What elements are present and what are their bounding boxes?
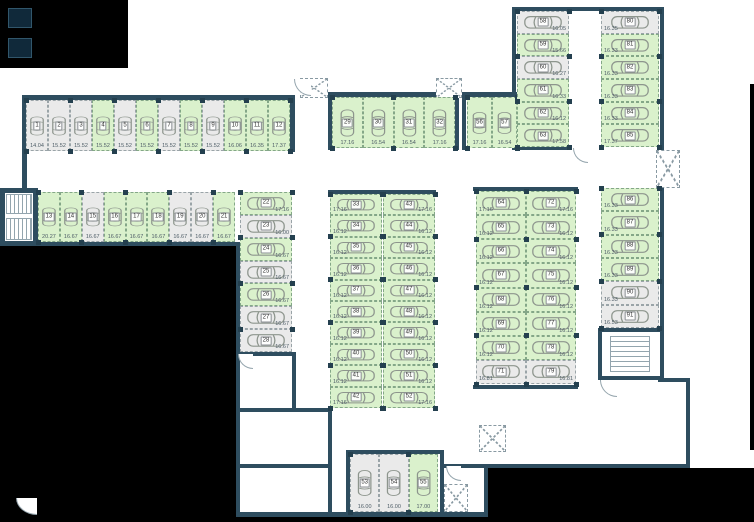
space-number: 86 [625,195,636,204]
parking-space-1[interactable]: 114.04 [26,100,48,151]
parking-space-67[interactable]: 6716.12 [476,263,526,287]
parking-space-28[interactable]: 2816.67 [240,329,292,352]
space-number: 17 [131,213,142,222]
space-number: 80 [625,18,636,27]
parking-space-41[interactable]: 4116.12 [330,365,382,386]
parking-space-44[interactable]: 4416.12 [383,215,435,236]
parking-space-13[interactable]: 1320.27 [38,192,60,242]
parking-space-29[interactable]: 2917.16 [332,97,363,148]
space-area-label: 16.53 [604,320,618,326]
parking-space-55[interactable]: 5517.00 [409,454,438,512]
space-number: 60 [538,63,549,72]
pillar [433,234,438,239]
space-area-label: 16.12 [559,304,573,310]
space-number: 52 [404,393,415,402]
parking-space-38[interactable]: 3816.12 [330,301,382,322]
pillar [474,237,479,242]
space-area-label: 16.67 [83,234,103,240]
space-area-label: 16.67 [127,234,147,240]
space-number: 77 [546,319,557,328]
parking-space-80[interactable]: 8016.35 [601,11,659,34]
space-number: 13 [44,213,55,222]
pillar [328,406,333,411]
pillar [112,98,117,103]
parking-space-87[interactable]: 8716.33 [601,211,659,234]
pillar [433,192,438,197]
space-area-label: 16.12 [552,116,566,122]
space-area-label: 16.12 [479,304,493,310]
parking-space-25[interactable]: 2516.67 [240,261,292,284]
wall [290,95,295,152]
wall [328,408,332,517]
parking-space-9[interactable]: 915.52 [202,100,224,151]
parking-space-16[interactable]: 1616.67 [104,192,126,242]
pillar [406,510,411,515]
pillar [167,190,172,195]
parking-space-75[interactable]: 7516.12 [526,263,576,287]
space-number: 42 [351,393,362,402]
space-area-label: 16.12 [559,255,573,261]
parking-space-88[interactable]: 8816.33 [601,235,659,258]
space-area-label: 16.12 [479,280,493,286]
parking-space-91[interactable]: 9116.53 [601,305,659,328]
space-area-label: 16.00 [351,504,378,510]
wall [455,92,459,150]
space-area-label: 16.67 [214,234,234,240]
pillar [453,146,458,151]
space-area-label: 16.12 [418,293,432,299]
space-area-label: 16.12 [333,250,347,256]
parking-space-21[interactable]: 2116.67 [213,192,235,242]
space-number: 76 [546,295,557,304]
pillar [290,281,295,286]
space-number: 14 [65,213,76,222]
parking-space-85[interactable]: 8517.37 [601,124,659,147]
parking-space-64[interactable]: 6417.16 [476,191,526,215]
space-number: 12 [274,121,285,130]
space-area-label: 16.12 [559,231,573,237]
pillar [657,99,662,104]
space-area-label: 16.54 [364,140,393,146]
pillar [112,149,117,154]
parking-space-18[interactable]: 1816.67 [147,192,169,242]
parking-space-31[interactable]: 3116.54 [394,97,425,148]
parking-space-82[interactable]: 8216.33 [601,56,659,79]
parking-space-10[interactable]: 1016.06 [224,100,246,151]
parking-space-65[interactable]: 6516.12 [476,215,526,239]
pillar [24,149,29,154]
space-area-label: 17.16 [333,207,347,213]
space-area-label: 16.33 [604,250,618,256]
parking-space-83[interactable]: 8316.33 [601,79,659,102]
parking-space-40[interactable]: 4016.12 [330,344,382,365]
space-area-label: 16.67 [275,321,289,327]
vent-shaft-icon [656,150,680,188]
pillar [433,363,438,368]
space-area-label: 16.35 [247,143,267,149]
parking-space-90[interactable]: 9016.33 [601,281,659,304]
parking-space-7[interactable]: 715.52 [158,100,180,151]
space-area-label: 16.12 [479,255,493,261]
parking-space-53[interactable]: 5316.00 [350,454,379,512]
space-number: 46 [404,264,415,273]
space-number: 10 [230,121,241,130]
parking-space-39[interactable]: 3916.12 [330,322,382,343]
space-number: 47 [404,286,415,295]
wall [598,328,602,380]
parking-space-78[interactable]: 7816.12 [526,336,576,360]
parking-space-74[interactable]: 7416.12 [526,239,576,263]
space-area-label: 17.37 [604,139,618,145]
space-area-label: 16.12 [418,357,432,363]
parking-space-12[interactable]: 1217.37 [268,100,290,151]
space-area-label: 15.66 [552,48,566,54]
parking-space-15[interactable]: 1516.67 [82,192,104,242]
floor-plan: 114.04215.52315.52415.52515.52615.52715.… [0,0,754,522]
parking-space-8[interactable]: 815.52 [180,100,202,151]
stairwell-icon [8,8,32,28]
parking-space-52[interactable]: 5217.16 [383,387,435,408]
parking-space-4[interactable]: 415.52 [92,100,114,151]
space-area-label: 16.06 [225,143,245,149]
space-number: 29 [342,118,353,127]
parking-space-70[interactable]: 7016.12 [476,336,526,360]
parking-space-86[interactable]: 8616.33 [601,188,659,211]
space-number: 32 [434,118,445,127]
parking-space-34[interactable]: 3416.12 [330,215,382,236]
space-area-label: 16.81 [479,376,493,382]
space-area-label: 15.52 [203,143,223,149]
pillar [290,327,295,332]
door-arc [446,466,461,481]
space-number: 70 [496,343,507,352]
space-number: 24 [261,245,272,254]
space-number: 33 [351,200,362,209]
parking-space-73[interactable]: 7316.12 [526,215,576,239]
space-number: 87 [625,218,636,227]
space-area-label: 16.12 [333,336,347,342]
vent-shaft-icon [444,484,468,512]
space-number: 41 [351,371,362,380]
space-area-label: 16.12 [333,272,347,278]
space-area-label: 17.16 [333,400,347,406]
pillar [515,99,520,104]
space-area-label: 16.00 [275,230,289,236]
space-number: 39 [351,329,362,338]
pillar [348,510,353,515]
pillar [524,189,529,194]
parking-space-56[interactable]: 5617.16 [467,97,492,148]
parking-space-79[interactable]: 7916.81 [526,360,576,384]
space-area-label: 15.52 [181,143,201,149]
space-area-label: 16.12 [333,229,347,235]
parking-space-14[interactable]: 1416.67 [60,192,82,242]
space-area-label: 16.33 [604,203,618,209]
space-number: 5 [121,121,128,130]
vent-shaft-icon [479,425,506,452]
parking-space-69[interactable]: 6916.12 [476,312,526,336]
pillar [567,145,572,150]
space-area-label: 16.12 [418,250,432,256]
parking-space-72[interactable]: 7217.16 [526,191,576,215]
space-area-label: 17.16 [418,207,432,213]
parking-space-30[interactable]: 3016.54 [363,97,394,148]
wall [686,380,690,468]
space-area-label: 16.33 [604,227,618,233]
wall [462,92,466,150]
pillar [465,95,470,100]
space-area-label: 15.52 [93,143,113,149]
space-area-label: 16.12 [333,293,347,299]
space-number: 38 [351,307,362,316]
space-number: 26 [261,290,272,299]
space-number: 58 [538,18,549,27]
space-number: 27 [261,313,272,322]
space-number: 8 [187,121,194,130]
space-area-label: 16.12 [479,231,493,237]
parking-space-22[interactable]: 2217.16 [240,192,292,215]
parking-space-2[interactable]: 215.52 [48,100,70,151]
parking-space-45[interactable]: 4516.12 [383,237,435,258]
space-number: 69 [496,319,507,328]
parking-space-51[interactable]: 5116.12 [383,365,435,386]
space-number: 66 [496,247,507,256]
space-number: 43 [404,200,415,209]
pillar [238,281,243,286]
space-area-label: 16.12 [479,352,493,358]
pillar [474,189,479,194]
pillar [156,149,161,154]
pillar [328,363,333,368]
pillar [244,149,249,154]
space-area-label: 16.67 [275,275,289,281]
parking-space-63[interactable]: 6317.58 [517,124,569,147]
pillar [211,240,216,245]
space-area-label: 15.52 [159,143,179,149]
space-area-label: 16.12 [418,229,432,235]
pillar [465,146,470,151]
space-number: 30 [373,118,384,127]
wall [292,352,296,412]
space-number: 11 [252,121,262,130]
wall [484,464,488,516]
space-number: 67 [496,271,507,280]
parking-space-46[interactable]: 4616.12 [383,258,435,279]
space-number: 37 [351,286,362,295]
pillar [156,98,161,103]
parking-space-66[interactable]: 6616.12 [476,239,526,263]
space-number: 74 [546,247,557,256]
pillar [290,190,295,195]
space-area-label: 16.33 [552,94,566,100]
parking-space-35[interactable]: 3516.12 [330,237,382,258]
pillar [524,382,529,387]
parking-space-71[interactable]: 7116.81 [476,360,526,384]
pillar [238,235,243,240]
parking-space-24[interactable]: 2416.67 [240,238,292,261]
space-number: 72 [546,199,557,208]
pillar [574,285,579,290]
parking-space-23[interactable]: 2316.00 [240,215,292,238]
space-area-label: 17.16 [425,140,454,146]
wall [660,7,664,152]
space-area-label: 16.33 [604,48,618,54]
pillar [381,277,386,282]
space-area-label: 14.04 [27,143,47,149]
pillar [244,98,249,103]
parking-space-68[interactable]: 6816.12 [476,288,526,312]
space-number: 36 [351,264,362,273]
space-number: 49 [404,329,415,338]
parking-space-62[interactable]: 6216.12 [517,102,569,125]
wall [236,408,332,412]
space-number: 34 [351,222,362,231]
parking-space-20[interactable]: 2016.67 [191,192,213,242]
space-area-label: 15.52 [115,143,135,149]
parking-space-17[interactable]: 1716.67 [126,192,148,242]
pillar [381,320,386,325]
pillar [36,190,41,195]
wall [660,186,664,382]
space-area-label: 16.35 [604,26,618,32]
space-number: 73 [546,223,557,232]
pillar [381,234,386,239]
parking-space-81[interactable]: 8116.33 [601,34,659,57]
parking-space-54[interactable]: 5416.00 [379,454,408,512]
space-area-label: 16.33 [604,116,618,122]
pillar [328,192,333,197]
pillar [433,320,438,325]
space-area-label: 16.33 [604,273,618,279]
pillar [524,237,529,242]
parking-space-3[interactable]: 315.52 [70,100,92,151]
space-area-label: 16.67 [275,253,289,259]
pillar [68,149,73,154]
parking-space-48[interactable]: 4816.12 [383,301,435,322]
space-area-label: 17.16 [559,207,573,213]
parking-space-50[interactable]: 5016.12 [383,344,435,365]
parking-space-37[interactable]: 3716.12 [330,280,382,301]
pillar [474,333,479,338]
pillar [328,234,333,239]
parking-space-42[interactable]: 4217.16 [330,387,382,408]
pillar [574,333,579,338]
space-number: 23 [261,222,272,231]
space-area-label: 17.16 [479,207,493,213]
space-area-label: 16.67 [170,234,190,240]
parking-space-11[interactable]: 1116.35 [246,100,268,151]
parking-space-60[interactable]: 6016.27 [517,56,569,79]
space-number: 2 [55,121,62,130]
pillar [657,54,662,59]
parking-space-5[interactable]: 515.52 [114,100,136,151]
space-area-label: 17.16 [275,207,289,213]
space-number: 81 [625,40,636,49]
parking-space-57[interactable]: 5716.54 [492,97,517,148]
outside-area [750,84,754,450]
space-number: 44 [404,222,415,231]
pillar [200,98,205,103]
pillar [391,95,396,100]
pillar [599,54,604,59]
outside-area [488,468,754,522]
pillar [657,279,662,284]
space-area-label: 16.12 [479,328,493,334]
parking-space-32[interactable]: 3217.16 [424,97,455,148]
space-area-label: 16.12 [333,379,347,385]
space-number: 62 [538,108,549,117]
space-number: 40 [351,350,362,359]
parking-space-84[interactable]: 8416.33 [601,102,659,125]
pillar [657,145,662,150]
space-area-label: 16.33 [604,94,618,100]
parking-space-47[interactable]: 4716.12 [383,280,435,301]
pillar [599,326,604,331]
parking-space-58[interactable]: 5816.05 [517,11,569,34]
parking-space-36[interactable]: 3616.12 [330,258,382,279]
parking-space-89[interactable]: 8916.33 [601,258,659,281]
pillar [515,54,520,59]
space-area-label: 16.12 [333,314,347,320]
wall [236,464,332,468]
space-number: 25 [261,267,272,276]
space-area-label: 17.16 [468,140,491,146]
space-number: 6 [143,121,150,130]
space-area-label: 17.37 [269,143,289,149]
space-area-label: 16.67 [275,344,289,350]
parking-space-61[interactable]: 6116.33 [517,79,569,102]
space-number: 48 [404,307,415,316]
pillar [599,9,604,14]
space-number: 20 [197,213,208,222]
space-area-label: 16.27 [552,71,566,77]
space-number: 19 [175,213,186,222]
door-arc [238,354,253,369]
space-number: 59 [538,40,549,49]
space-area-label: 17.16 [418,400,432,406]
parking-space-43[interactable]: 4317.16 [383,194,435,215]
parking-space-33[interactable]: 3317.16 [330,194,382,215]
space-number: 83 [625,86,636,95]
pillar [391,146,396,151]
pillar [36,240,41,245]
space-area-label: 20.27 [39,234,59,240]
space-number: 90 [625,288,636,297]
parking-space-59[interactable]: 5915.66 [517,34,569,57]
parking-space-76[interactable]: 7616.12 [526,288,576,312]
parking-space-26[interactable]: 2616.67 [240,283,292,306]
parking-space-27[interactable]: 2716.67 [240,306,292,329]
space-number: 22 [261,199,272,208]
parking-space-19[interactable]: 1916.67 [169,192,191,242]
pillar [211,190,216,195]
pillar [68,98,73,103]
pillar [574,237,579,242]
pillar [330,146,335,151]
space-number: 9 [209,121,216,130]
parking-space-6[interactable]: 615.52 [136,100,158,151]
space-number: 56 [474,118,485,127]
space-area-label: 16.12 [333,357,347,363]
space-area-label: 16.33 [604,71,618,77]
pillar [290,235,295,240]
pillar [474,382,479,387]
parking-space-77[interactable]: 7716.12 [526,312,576,336]
space-number: 65 [496,223,507,232]
pillar [574,382,579,387]
parking-space-49[interactable]: 4916.12 [383,322,435,343]
space-number: 50 [404,350,415,359]
